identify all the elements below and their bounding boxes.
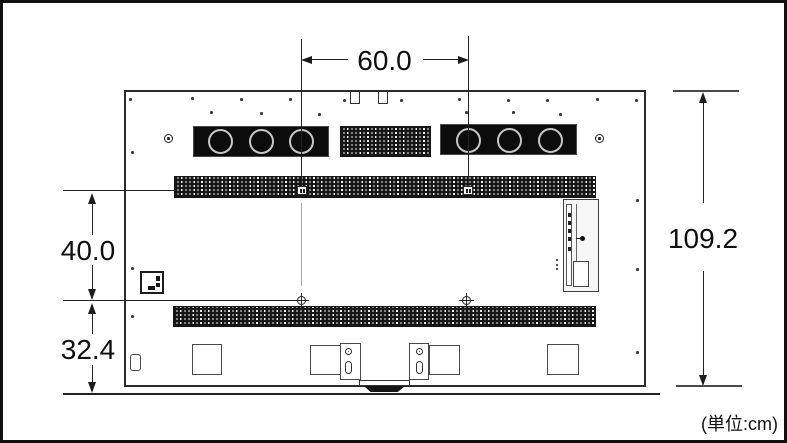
screw-dot (240, 98, 243, 101)
terminal-panel (563, 199, 599, 292)
dim-value-overall-height: 109.2 (653, 225, 753, 253)
top-bracket-tab-right (378, 92, 388, 104)
dim-line-109-lower (703, 271, 704, 376)
screw-dot (400, 99, 403, 102)
arrowhead-down-icon (88, 289, 96, 300)
speaker-driver-icon (497, 128, 522, 153)
screw-dot (343, 99, 346, 102)
dim-line-40-upper (92, 203, 93, 235)
dim-line-40-lower (92, 265, 93, 291)
extension-line-lower-holes (63, 300, 303, 301)
screw-dot (512, 111, 515, 114)
dim-line-60-right (423, 59, 459, 60)
screw-dot (129, 98, 132, 101)
speaker-driver-icon (208, 129, 233, 154)
plate-slot-icon (345, 361, 352, 374)
vesa-hole-top-left (297, 186, 307, 195)
screw-dot (596, 98, 599, 101)
plate-screw-icon (416, 348, 423, 355)
screw-dot (210, 111, 213, 114)
screw-dot (507, 99, 510, 102)
speaker-driver-icon (249, 129, 274, 154)
dim-line-32-lower (92, 365, 93, 383)
extension-line-vesa-right (468, 36, 469, 193)
extension-line-vesa-left (301, 39, 302, 198)
rating-label (140, 271, 164, 294)
dim-value-bottom-clearance: 32.4 (48, 336, 128, 364)
stand-mount-right-box (429, 345, 460, 375)
vesa-hole-top-right (463, 186, 473, 195)
screw-icon (164, 134, 173, 143)
screw-dot (131, 151, 134, 154)
screw-dot (636, 268, 639, 271)
plate-screw-icon (345, 348, 352, 355)
cable-dots (556, 259, 560, 271)
screw-dot (559, 113, 562, 116)
extension-line-vesa-left-lower (301, 203, 302, 286)
screw-dot (191, 97, 194, 100)
vent-block-center (340, 126, 431, 157)
stand-mount-left-box (310, 345, 341, 375)
plate-slot-icon (416, 361, 423, 374)
rear-view-dimension-diagram: 60.0 109.2 40.0 32.4 (単位:cm) (0, 0, 787, 443)
screw-dot (318, 113, 321, 116)
tick-bottom-overall (676, 385, 742, 387)
screw-dot (131, 315, 134, 318)
bottom-box-2 (547, 344, 579, 375)
speaker-driver-icon (538, 128, 563, 153)
stand-mount-right-plate (409, 343, 429, 380)
screw-dot (260, 112, 263, 115)
vent-strip-upper (174, 176, 596, 198)
baseline (63, 393, 660, 395)
speaker-grille-right (440, 124, 577, 155)
screw-dot (131, 267, 134, 270)
screw-dot (546, 99, 549, 102)
arrowhead-down-icon (699, 375, 707, 386)
screw-dot (635, 99, 638, 102)
extension-line-upper-holes (63, 190, 175, 191)
vesa-hole-bottom-left (297, 296, 306, 305)
screw-dot (636, 351, 639, 354)
screw-icon (595, 134, 604, 143)
screw-dot (636, 199, 639, 202)
panel-cutout (573, 261, 589, 287)
arrowhead-down-icon (88, 382, 96, 393)
dim-line-32-upper (92, 313, 93, 334)
top-bracket-tab-left (350, 92, 360, 104)
stand-mount-left-plate (340, 343, 361, 380)
panel-screw-icon (580, 236, 585, 241)
bottom-sensor-bar (359, 380, 410, 386)
bottom-box-1 (192, 344, 222, 375)
connector-strip (566, 204, 572, 286)
vent-strip-lower (173, 306, 596, 327)
screw-dot (289, 98, 292, 101)
vesa-hole-bottom-right (462, 296, 471, 305)
bottom-sensor-base (364, 386, 405, 392)
dim-value-vesa-width: 60.0 (301, 47, 468, 75)
speaker-grille-left (193, 126, 329, 157)
dim-value-vesa-height: 40.0 (48, 237, 128, 265)
side-slot (130, 354, 141, 371)
unit-note: (単位:cm) (686, 415, 778, 433)
screw-dot (458, 98, 461, 101)
dim-line-109-upper (703, 102, 704, 203)
